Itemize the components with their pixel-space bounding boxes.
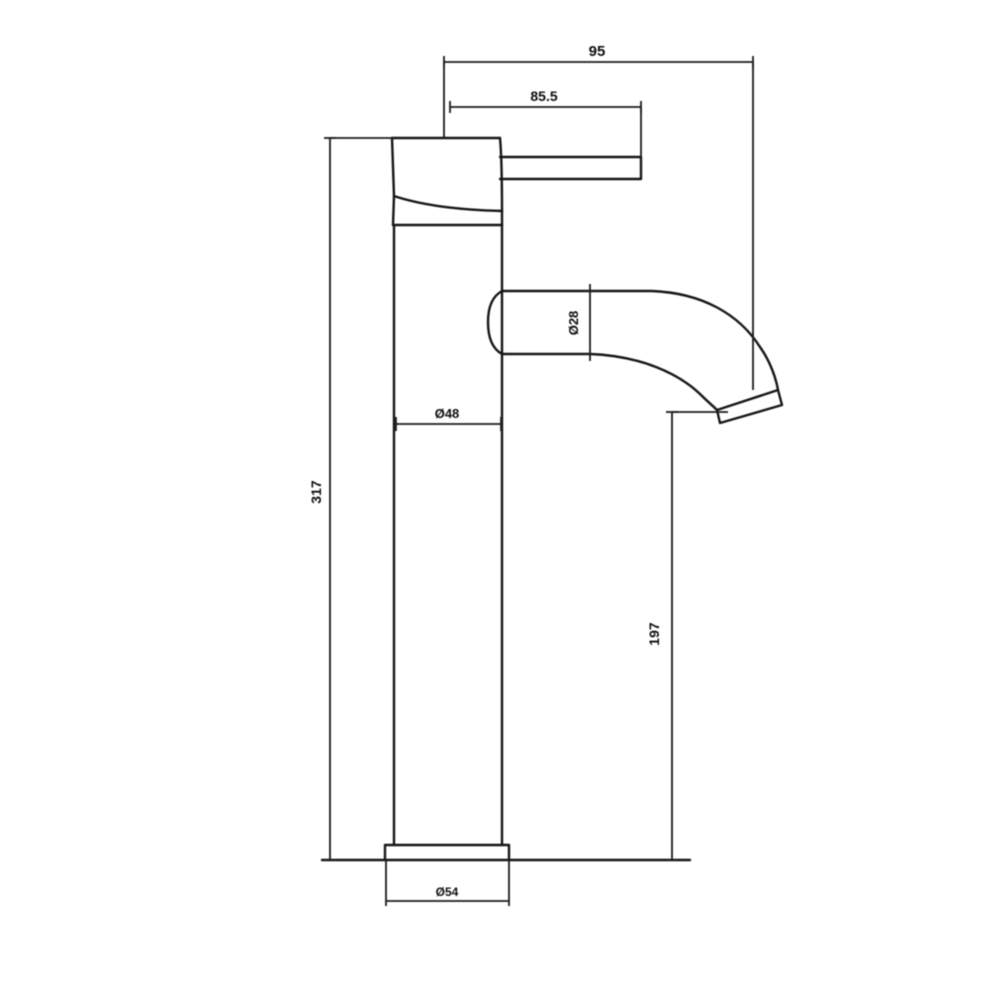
dimension-spout-height: 197 <box>646 412 728 860</box>
spout-cap-arc <box>488 291 502 354</box>
dim-label-base-diameter: Ø54 <box>436 885 459 899</box>
spout-bottom-inner-curve <box>502 354 717 410</box>
faucet-outline <box>322 138 782 860</box>
dimension-handle-reach: 85.5 <box>450 88 641 157</box>
dim-label-body-diameter: Ø48 <box>435 406 460 421</box>
spout-aerator-band <box>717 390 782 423</box>
dim-label-spout-height: 197 <box>646 622 662 646</box>
spout-top-outer-curve <box>502 291 778 390</box>
dimension-base-diameter: Ø54 <box>386 860 509 906</box>
dimension-spout-diameter: Ø28 <box>566 284 596 361</box>
head-right-edge <box>500 138 502 212</box>
dim-label-spout-diameter: Ø28 <box>566 311 581 336</box>
faucet-technical-drawing: 95 85.5 317 <box>0 0 1000 1000</box>
dim-label-projection: 95 <box>589 43 606 60</box>
base-flange <box>385 845 509 860</box>
dimension-overall-height: 317 <box>308 138 392 860</box>
head-tilt-joint <box>394 196 502 211</box>
technical-drawing-page: 95 85.5 317 <box>0 0 1000 1000</box>
collar-left-edge <box>393 196 394 225</box>
dimension-body-diameter: Ø48 <box>396 406 501 431</box>
dim-label-overall-height: 317 <box>308 480 324 504</box>
head-left-edge <box>392 138 394 196</box>
dim-label-handle-reach: 85.5 <box>530 88 557 104</box>
handle-bar <box>500 157 641 179</box>
